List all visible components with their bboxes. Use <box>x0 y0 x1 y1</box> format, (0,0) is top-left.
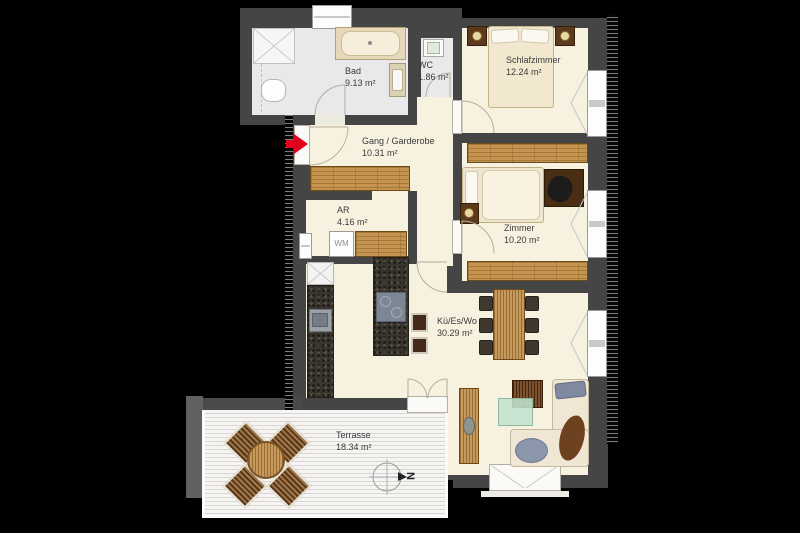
floor-plan: WM <box>0 0 800 533</box>
room-name: AR <box>337 205 368 217</box>
kitchen-counter <box>307 285 334 398</box>
dining-chair <box>525 318 539 333</box>
entrance-arrow-head-icon <box>294 134 308 154</box>
tv-icon <box>463 417 475 435</box>
bad-sink-basin <box>392 69 403 91</box>
room-area: 4.16 m² <box>337 217 368 229</box>
door-schlafzimmer <box>452 100 462 134</box>
wardrobe-gang <box>310 166 410 191</box>
bar-stool <box>411 313 428 332</box>
room-label-kitchen-living: Kü/Es/Wo 30.29 m² <box>437 316 477 339</box>
room-name: Terrasse <box>336 430 372 442</box>
room-label-terrasse: Terrasse 18.34 m² <box>336 430 372 453</box>
bed-pillow <box>491 28 520 44</box>
washing-machine: WM <box>329 231 354 257</box>
single-bed-duvet <box>482 170 540 220</box>
door-zimmer <box>452 220 462 254</box>
washing-machine-label: WM <box>334 239 348 248</box>
room-name: WC <box>418 60 449 72</box>
room-area: 1.86 m² <box>418 72 449 84</box>
wardrobe-zimmer-bottom <box>467 261 588 281</box>
cooktop <box>376 292 406 322</box>
room-label-schlafzimmer: Schlafzimmer 12.24 m² <box>506 55 561 78</box>
dining-chair <box>525 340 539 355</box>
window-ar <box>299 233 312 259</box>
room-area: 12.24 m² <box>506 67 561 79</box>
kitchen-tall-cabinet <box>307 262 334 285</box>
room-area: 18.34 m² <box>336 442 372 454</box>
bar-stool <box>411 337 428 354</box>
door-terrace-sill <box>481 491 569 497</box>
kitchen-sink-basin <box>312 313 328 327</box>
dining-chair <box>479 296 493 311</box>
dining-chair <box>479 340 493 355</box>
nightstand-lamp-icon <box>560 31 570 41</box>
compass-north-label: N <box>404 472 416 480</box>
room-name: Bad <box>345 66 376 78</box>
bed-pillow <box>521 28 550 44</box>
dining-table <box>493 289 525 360</box>
shelf-ar <box>355 231 407 257</box>
room-label-ar: AR 4.16 m² <box>337 205 368 228</box>
room-label-zimmer: Zimmer 10.20 m² <box>504 223 540 246</box>
room-label-wc: WC 1.86 m² <box>418 60 449 83</box>
room-name: Kü/Es/Wo <box>437 316 477 328</box>
window-living <box>587 310 607 377</box>
room-area: 9.13 m² <box>345 78 376 90</box>
terrace-table <box>247 441 285 479</box>
wc-sink-basin <box>427 42 440 54</box>
dining-chair <box>525 296 539 311</box>
dining-chair <box>479 318 493 333</box>
hatch-strip-right <box>607 14 618 444</box>
room-name: Schlafzimmer <box>506 55 561 67</box>
cooktop-burner-icon <box>391 307 402 318</box>
wardrobe-zimmer-top <box>467 143 588 163</box>
window-bad <box>312 5 352 29</box>
sofa-cushion <box>515 438 548 463</box>
room-name: Zimmer <box>504 223 540 235</box>
door-terrace-living <box>489 464 561 491</box>
door-gap-kitchen <box>417 258 447 266</box>
toilet <box>261 79 286 102</box>
bathtub-drain <box>368 41 372 45</box>
door-gap-ar <box>372 191 408 200</box>
room-label-gang: Gang / Garderobe 10.31 m² <box>362 136 435 159</box>
sofa-pillow <box>554 380 587 399</box>
door-terrace-kitchen <box>407 396 448 413</box>
door-gap-bad <box>315 115 345 125</box>
wall-terrace-left <box>186 396 203 498</box>
nightstand-lamp-icon <box>464 208 474 218</box>
room-name: Gang / Garderobe <box>362 136 435 148</box>
room-area: 30.29 m² <box>437 328 477 340</box>
shower <box>253 28 295 64</box>
window-schlafzimmer <box>587 70 607 137</box>
nightstand-lamp-icon <box>472 31 482 41</box>
window-zimmer <box>587 190 607 258</box>
room-label-bad: Bad 9.13 m² <box>345 66 376 89</box>
room-area: 10.20 m² <box>504 235 540 247</box>
room-area: 10.31 m² <box>362 148 435 160</box>
cooktop-burner-icon <box>380 296 391 307</box>
coffee-table <box>498 398 533 426</box>
